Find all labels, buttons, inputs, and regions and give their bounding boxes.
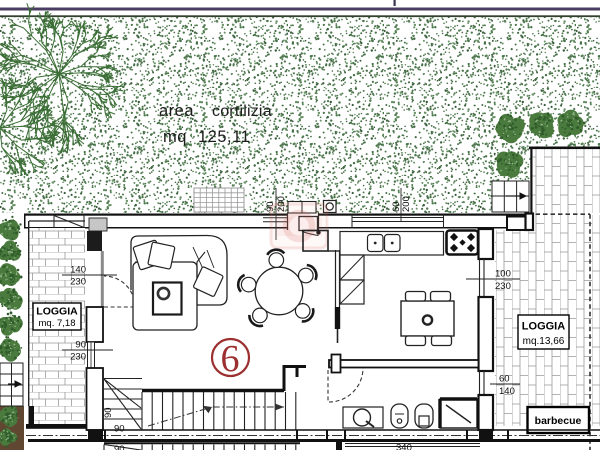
svg-text:barbecue: barbecue — [535, 415, 582, 427]
svg-text:230: 230 — [70, 277, 86, 288]
svg-text:140: 140 — [499, 386, 515, 397]
svg-text:mq. 7,18: mq. 7,18 — [39, 318, 76, 329]
svg-text:100: 100 — [495, 269, 511, 280]
svg-text:230: 230 — [70, 352, 86, 363]
svg-text:6: 6 — [221, 338, 240, 380]
svg-text:LOGGIA: LOGGIA — [36, 306, 78, 318]
svg-text:mq: mq — [163, 128, 187, 146]
svg-text:area: area — [159, 102, 194, 120]
svg-text:60: 60 — [499, 374, 510, 385]
svg-text:140: 140 — [70, 265, 86, 276]
svg-text:cortilizia: cortilizia — [212, 103, 272, 120]
svg-text:90: 90 — [75, 340, 86, 351]
svg-text:230: 230 — [495, 281, 511, 292]
svg-text:125,11: 125,11 — [198, 128, 250, 146]
svg-text:90: 90 — [114, 424, 125, 435]
svg-text:200: 200 — [401, 196, 412, 212]
svg-text:mq.13,66: mq.13,66 — [523, 336, 565, 347]
svg-text:LOGGIA: LOGGIA — [522, 321, 565, 333]
svg-text:90: 90 — [103, 407, 114, 418]
svg-text:90: 90 — [114, 444, 125, 450]
svg-text:340: 340 — [396, 443, 412, 450]
